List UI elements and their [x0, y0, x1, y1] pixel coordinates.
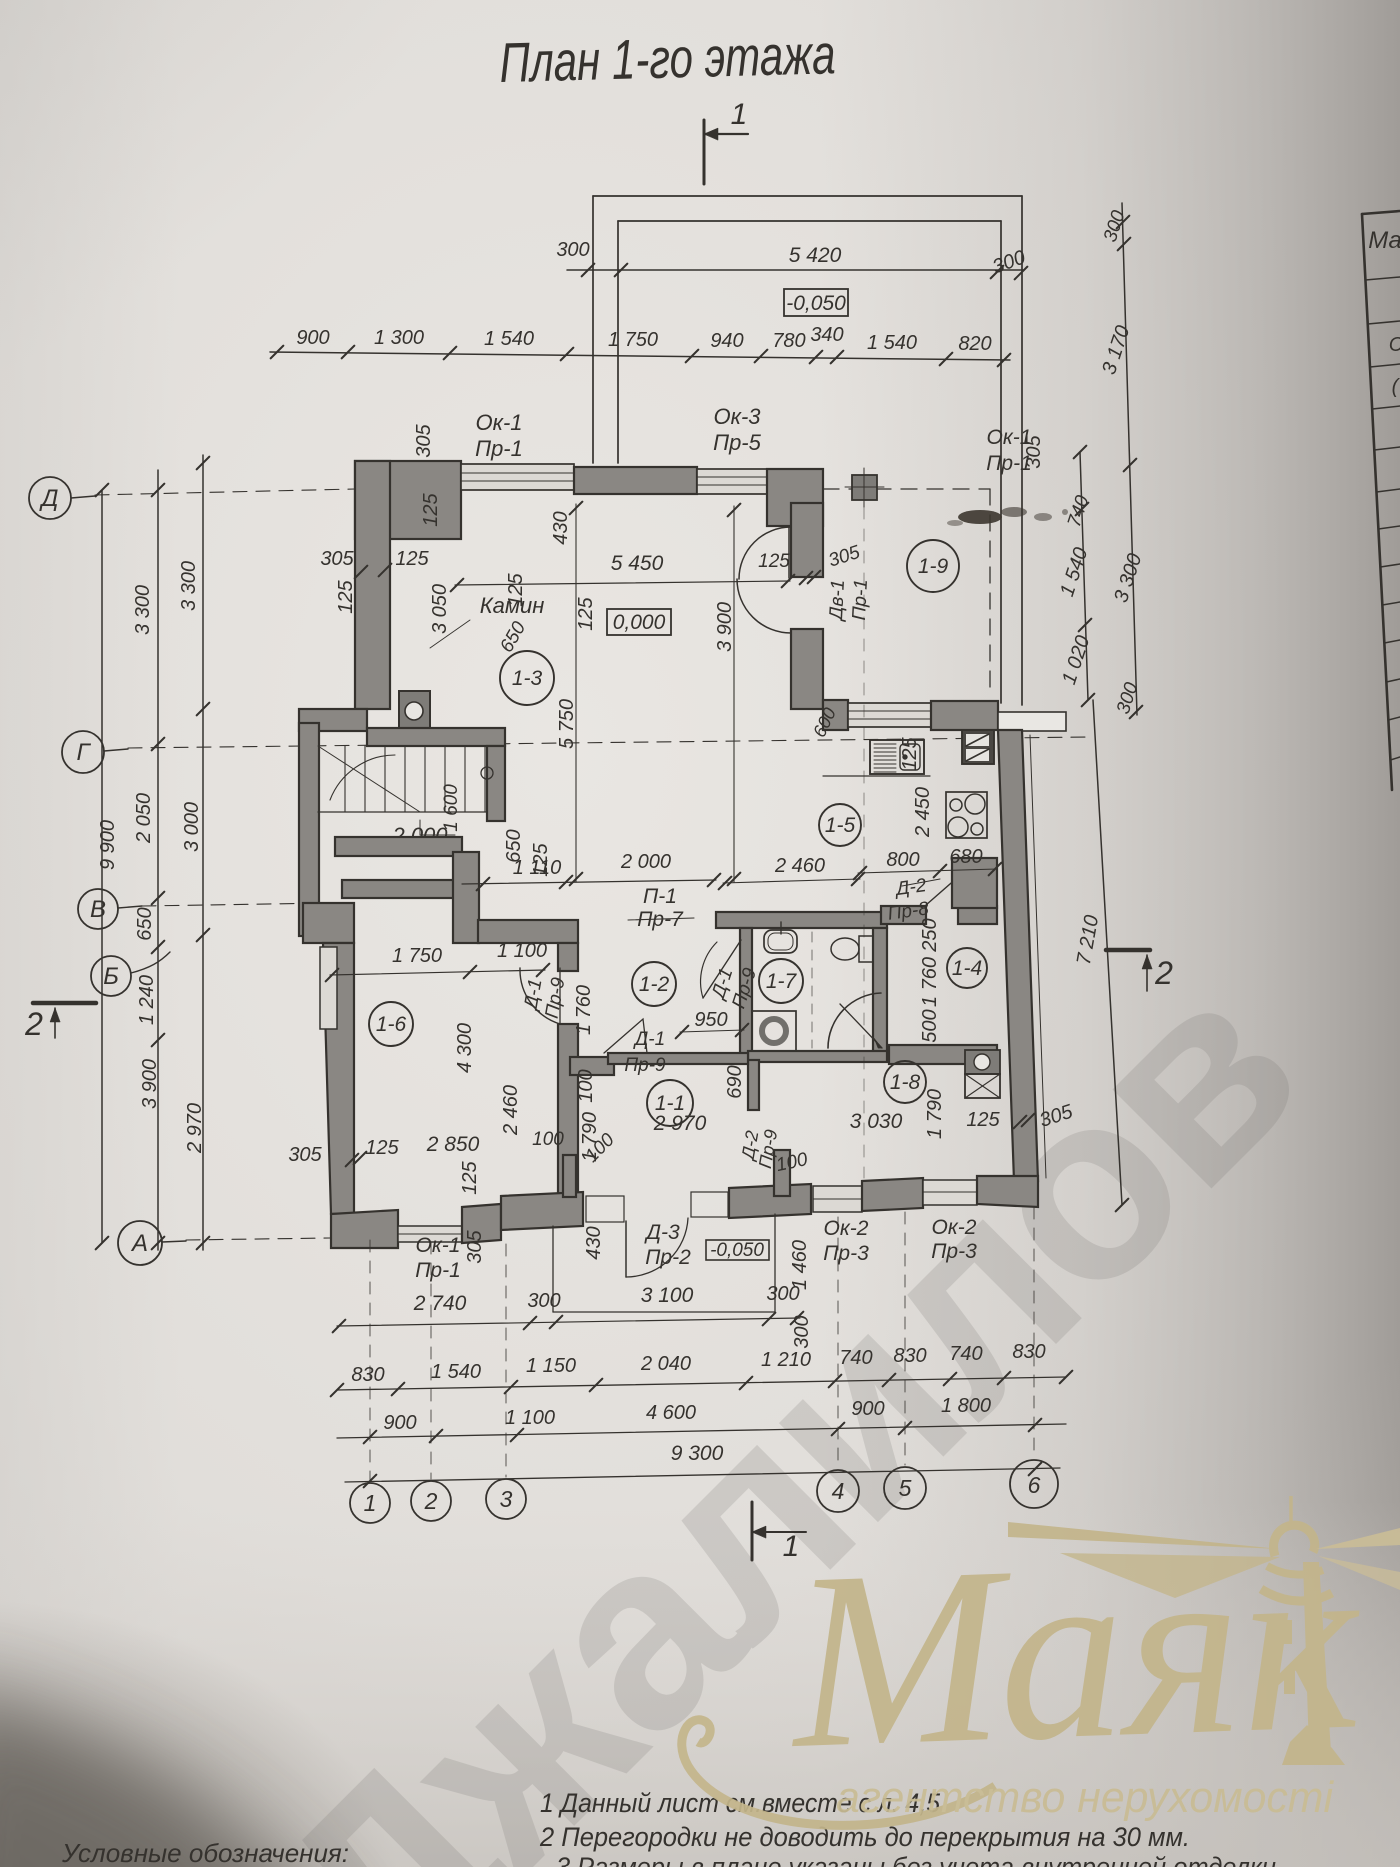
svg-text:3 900: 3 900	[714, 602, 736, 652]
svg-text:Ок-1: Ок-1	[475, 410, 522, 435]
svg-text:1-5: 1-5	[825, 814, 856, 837]
svg-text:Пр-3: Пр-3	[823, 1242, 869, 1265]
svg-text:830: 830	[1012, 1341, 1045, 1363]
svg-text:1 240: 1 240	[136, 975, 158, 1025]
svg-text:3 030: 3 030	[850, 1110, 903, 1133]
svg-text:1 750: 1 750	[392, 945, 442, 967]
svg-text:680: 680	[949, 846, 982, 868]
svg-text:9 300: 9 300	[671, 1442, 724, 1465]
svg-text:Маяк: Маяк	[784, 1501, 1366, 1801]
svg-text:1 760: 1 760	[919, 957, 941, 1007]
svg-text:300: 300	[556, 239, 589, 261]
svg-text:305: 305	[413, 423, 435, 457]
svg-text:340: 340	[810, 324, 843, 346]
svg-text:250: 250	[919, 918, 941, 952]
svg-text:125: 125	[505, 572, 527, 606]
svg-text:1-8: 1-8	[890, 1071, 921, 1094]
svg-text:100: 100	[575, 1069, 597, 1102]
svg-text:650: 650	[134, 907, 156, 940]
svg-text:2 460: 2 460	[500, 1085, 522, 1136]
svg-text:4: 4	[832, 1478, 845, 1504]
svg-text:П-1: П-1	[643, 885, 677, 908]
svg-text:С: С	[1389, 334, 1400, 356]
svg-text:Пр-5: Пр-5	[713, 430, 762, 455]
svg-text:2 740: 2 740	[413, 1292, 467, 1315]
svg-text:В: В	[90, 896, 106, 923]
svg-text:1 100: 1 100	[497, 940, 547, 962]
svg-text:830: 830	[351, 1364, 384, 1386]
svg-text:2 460: 2 460	[774, 855, 825, 877]
svg-text:1-9: 1-9	[918, 555, 949, 578]
svg-text:3 000: 3 000	[181, 802, 203, 852]
svg-text:1 750: 1 750	[608, 329, 658, 351]
svg-text:5 420: 5 420	[789, 244, 842, 267]
svg-text:2 000: 2 000	[620, 851, 671, 873]
svg-text:1 210: 1 210	[761, 1349, 811, 1371]
svg-text:А: А	[130, 1230, 148, 1257]
svg-text:3 050: 3 050	[429, 584, 451, 634]
svg-text:Условные обозначения:: Условные обозначения:	[61, 1838, 349, 1867]
svg-text:9 900: 9 900	[97, 820, 119, 870]
svg-text:4 300: 4 300	[454, 1023, 476, 1073]
svg-text:1 800: 1 800	[941, 1395, 991, 1417]
svg-text:650: 650	[503, 829, 525, 862]
svg-text:2 850: 2 850	[426, 1133, 480, 1156]
svg-text:5 450: 5 450	[611, 552, 664, 575]
svg-text:1 150: 1 150	[526, 1355, 576, 1377]
svg-text:3 300: 3 300	[178, 561, 200, 611]
svg-text:3: 3	[500, 1486, 513, 1512]
svg-text:5: 5	[899, 1475, 912, 1501]
svg-text:Пр-1: Пр-1	[475, 436, 523, 461]
svg-text:900: 900	[296, 327, 329, 349]
svg-text:2 970: 2 970	[653, 1112, 707, 1135]
svg-text:Д-1: Д-1	[633, 1029, 665, 1050]
svg-text:3 900: 3 900	[139, 1059, 161, 1109]
svg-text:План 1-го этажа: План 1-го этажа	[499, 22, 837, 94]
svg-text:1 540: 1 540	[431, 1361, 481, 1383]
svg-text:125: 125	[966, 1109, 1000, 1131]
svg-text:300: 300	[766, 1283, 799, 1305]
svg-text:агентство нерухомості: агентство нерухомості	[836, 1773, 1334, 1822]
svg-text:5 750: 5 750	[556, 699, 578, 749]
svg-text:Пр-1: Пр-1	[849, 579, 872, 621]
svg-text:950: 950	[694, 1009, 727, 1031]
svg-text:1-6: 1-6	[376, 1013, 407, 1036]
svg-text:3 300: 3 300	[132, 585, 154, 635]
svg-text:740: 740	[839, 1347, 872, 1369]
svg-text:2 970: 2 970	[184, 1103, 206, 1154]
svg-text:Пр-2: Пр-2	[645, 1246, 691, 1269]
svg-text:740: 740	[949, 1343, 982, 1365]
svg-text:2: 2	[424, 1488, 438, 1514]
svg-text:3 100: 3 100	[641, 1284, 694, 1307]
svg-text:Г: Г	[76, 739, 91, 766]
svg-text:1-3: 1-3	[512, 667, 543, 690]
svg-text:1-4: 1-4	[952, 957, 982, 980]
svg-text:125: 125	[420, 492, 442, 526]
svg-text:Ок-2: Ок-2	[824, 1217, 869, 1240]
svg-text:300: 300	[527, 1290, 560, 1312]
svg-text:800: 800	[886, 849, 919, 871]
svg-text:125: 125	[899, 736, 921, 770]
svg-text:830: 830	[893, 1345, 926, 1367]
svg-text:430: 430	[583, 1226, 605, 1259]
svg-text:Ок-2: Ок-2	[932, 1216, 977, 1239]
svg-text:Б: Б	[103, 963, 119, 990]
svg-text:305: 305	[464, 1229, 486, 1263]
svg-text:430: 430	[550, 511, 572, 544]
svg-text:Д-3: Д-3	[644, 1221, 680, 1244]
svg-text:4 600: 4 600	[646, 1402, 696, 1424]
svg-text:2: 2	[1154, 955, 1173, 991]
svg-text:1 540: 1 540	[867, 332, 917, 354]
svg-text:900: 900	[383, 1412, 416, 1434]
svg-text:500: 500	[919, 1009, 941, 1042]
svg-text:1 540: 1 540	[484, 328, 534, 350]
svg-text:Пр-9: Пр-9	[624, 1055, 666, 1076]
svg-text:2 450: 2 450	[912, 787, 934, 838]
svg-text:2: 2	[24, 1006, 43, 1042]
svg-text:305: 305	[288, 1144, 322, 1166]
svg-text:Пр-3: Пр-3	[931, 1240, 977, 1263]
svg-text:1-2: 1-2	[639, 973, 670, 996]
svg-text:900: 900	[851, 1398, 884, 1420]
svg-text:Дв-1: Дв-1	[826, 579, 849, 622]
svg-text:1 300: 1 300	[374, 327, 424, 349]
svg-text:1: 1	[364, 1490, 377, 1516]
svg-text:125: 125	[758, 551, 790, 572]
svg-text:1 760: 1 760	[573, 985, 595, 1035]
svg-text:125: 125	[395, 548, 429, 570]
svg-text:Ма: Ма	[1368, 227, 1400, 254]
svg-text:2 050: 2 050	[133, 793, 155, 844]
svg-text:305: 305	[320, 548, 354, 570]
svg-text:Д: Д	[39, 485, 59, 512]
svg-text:690: 690	[724, 1065, 746, 1098]
svg-text:125: 125	[530, 842, 552, 876]
svg-text:0,000: 0,000	[613, 611, 666, 634]
svg-text:125: 125	[335, 579, 357, 613]
svg-text:125: 125	[575, 596, 597, 630]
svg-text:1 600: 1 600	[441, 784, 462, 832]
svg-text:100: 100	[532, 1129, 564, 1150]
svg-text:125: 125	[459, 1160, 481, 1194]
svg-text:125: 125	[365, 1137, 399, 1159]
svg-text:2 040: 2 040	[640, 1353, 691, 1375]
svg-text:3 Размеры в плане указаны без: 3 Размеры в плане указаны без учета внут…	[556, 1852, 1276, 1867]
svg-text:940: 940	[710, 330, 743, 352]
svg-text:Ок-1: Ок-1	[416, 1234, 461, 1257]
svg-text:-0,050: -0,050	[710, 1240, 764, 1261]
svg-text:780: 780	[772, 330, 805, 352]
svg-text:1-7: 1-7	[766, 970, 798, 993]
svg-text:1: 1	[731, 98, 748, 131]
svg-text:1 790: 1 790	[924, 1089, 946, 1139]
svg-text:Ок-3: Ок-3	[713, 404, 761, 429]
svg-text:6: 6	[1028, 1472, 1041, 1498]
svg-text:Пр-1: Пр-1	[415, 1259, 461, 1282]
svg-text:820: 820	[958, 333, 991, 355]
svg-text:305: 305	[1023, 434, 1045, 468]
svg-text:-0,050: -0,050	[786, 292, 846, 315]
svg-text:1 100: 1 100	[505, 1407, 555, 1429]
